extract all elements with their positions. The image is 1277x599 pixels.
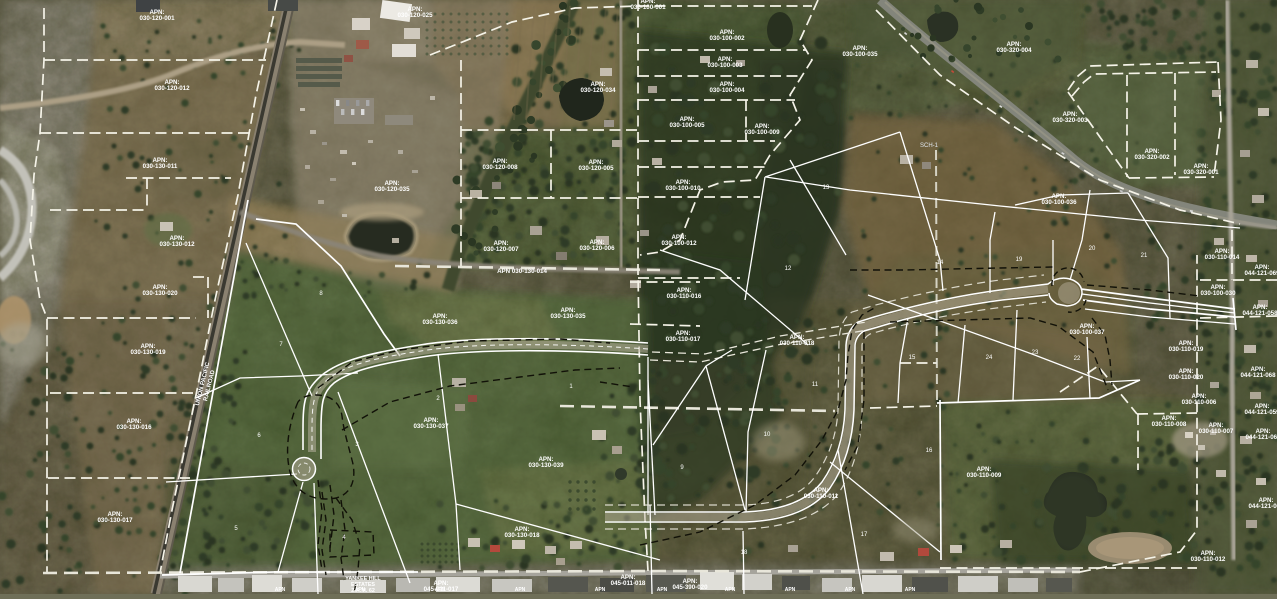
svg-text:030-120-005: 030-120-005: [578, 165, 614, 172]
svg-text:030-130-036: 030-130-036: [422, 319, 458, 326]
svg-text:030-110-017: 030-110-017: [666, 336, 701, 343]
svg-text:030-110-011: 030-110-011: [804, 493, 839, 500]
svg-text:11: 11: [812, 382, 819, 388]
svg-text:030-130-018: 030-130-018: [504, 532, 540, 539]
svg-text:20: 20: [1089, 246, 1096, 252]
svg-text:13: 13: [823, 185, 830, 191]
svg-text:14: 14: [937, 260, 944, 266]
svg-text:19: 19: [1016, 257, 1023, 263]
svg-text:030-130-017: 030-130-017: [97, 517, 133, 524]
svg-text:APN: APN: [905, 587, 916, 593]
svg-text:030-100-001: 030-100-001: [630, 4, 666, 11]
svg-text:030-130-039: 030-130-039: [528, 462, 564, 469]
svg-text:044-121-059: 044-121-059: [1244, 409, 1277, 416]
svg-text:030-320-001: 030-320-001: [1183, 169, 1219, 176]
svg-text:030-110-007: 030-110-007: [1199, 428, 1234, 435]
svg-text:030-320-003: 030-320-003: [1052, 117, 1088, 124]
svg-text:030-120-006: 030-120-006: [579, 245, 615, 252]
svg-text:15: 15: [909, 355, 916, 361]
svg-text:24: 24: [986, 355, 993, 361]
svg-text:17: 17: [861, 532, 868, 538]
svg-text:030-120-008: 030-120-008: [482, 164, 518, 171]
svg-text:030-120-035: 030-120-035: [374, 186, 410, 193]
svg-text:044-121-067: 044-121-067: [1245, 434, 1277, 441]
svg-text:030-110-019: 030-110-019: [1169, 346, 1204, 353]
svg-text:030-130-019: 030-130-019: [130, 349, 166, 356]
svg-text:045-390-020: 045-390-020: [672, 584, 708, 591]
svg-text:045-011-018: 045-011-018: [611, 580, 646, 587]
svg-text:030-120-012: 030-120-012: [154, 85, 190, 92]
svg-text:030-110-006: 030-110-006: [1182, 399, 1217, 406]
svg-text:030-100-002: 030-100-002: [709, 35, 745, 42]
svg-text:044-121-068: 044-121-068: [1240, 372, 1276, 379]
svg-text:030-130-012: 030-130-012: [159, 241, 195, 248]
svg-text:030-100-036: 030-100-036: [1041, 199, 1077, 206]
svg-text:030-120-034: 030-120-034: [580, 87, 616, 94]
svg-text:030-130-020: 030-130-020: [142, 290, 178, 297]
svg-text:APN: APN: [515, 587, 526, 593]
svg-text:21: 21: [1141, 253, 1148, 259]
svg-text:044-121-061: 044-121-061: [1248, 503, 1277, 510]
svg-text:030-120-025: 030-120-025: [397, 12, 433, 19]
svg-text:030-100-005: 030-100-005: [669, 122, 705, 129]
svg-text:030-110-014: 030-110-014: [1205, 254, 1240, 261]
svg-text:APN: APN: [435, 587, 446, 593]
svg-text:10: 10: [764, 432, 771, 438]
svg-text:APN: APN: [657, 587, 668, 593]
svg-text:030-130-011: 030-130-011: [143, 163, 178, 170]
svg-text:030-100-035: 030-100-035: [842, 51, 878, 58]
svg-text:030-110-018: 030-110-018: [780, 340, 815, 347]
svg-text:APN: APN: [595, 587, 606, 593]
svg-text:APN: APN: [725, 587, 736, 593]
svg-text:044-121-058: 044-121-058: [1242, 310, 1277, 317]
svg-text:18: 18: [741, 550, 748, 556]
svg-text:030-110-020: 030-110-020: [1169, 374, 1204, 381]
svg-text:APN: APN: [275, 587, 286, 593]
svg-text:030-110-016: 030-110-016: [667, 293, 702, 300]
svg-text:030-100-010: 030-100-010: [665, 185, 701, 192]
svg-text:SCH-1: SCH-1: [920, 143, 939, 149]
svg-text:030-120-001: 030-120-001: [139, 15, 175, 22]
svg-text:030-110-009: 030-110-009: [967, 472, 1002, 479]
svg-text:030-100-012: 030-100-012: [661, 240, 697, 247]
svg-text:030-100-004: 030-100-004: [709, 87, 745, 94]
svg-text:12: 12: [785, 266, 792, 272]
svg-text:22: 22: [1074, 356, 1081, 362]
svg-text:030-100-037: 030-100-037: [1069, 329, 1105, 336]
svg-text:030-130-035: 030-130-035: [550, 313, 586, 320]
svg-text:030-320-002: 030-320-002: [1134, 154, 1170, 161]
svg-text:APN: APN: [845, 587, 856, 593]
svg-text:030-120-007: 030-120-007: [483, 246, 519, 253]
svg-text:030-130-037: 030-130-037: [413, 423, 449, 430]
svg-text:APN: APN: [355, 587, 366, 593]
svg-text:030-110-008: 030-110-008: [1152, 421, 1187, 428]
svg-text:APN 030-130-014: APN 030-130-014: [497, 268, 547, 275]
svg-text:030-130-016: 030-130-016: [116, 424, 152, 431]
svg-text:030-110-012: 030-110-012: [1191, 556, 1226, 563]
svg-text:030-100-003: 030-100-003: [707, 62, 743, 69]
svg-text:16: 16: [926, 448, 933, 454]
svg-text:23: 23: [1032, 350, 1039, 356]
svg-text:APN: APN: [785, 587, 796, 593]
svg-text:044-121-069: 044-121-069: [1244, 270, 1277, 277]
svg-text:030-320-004: 030-320-004: [996, 47, 1032, 54]
svg-text:030-100-030: 030-100-030: [1200, 290, 1236, 297]
svg-text:030-100-009: 030-100-009: [744, 129, 780, 136]
